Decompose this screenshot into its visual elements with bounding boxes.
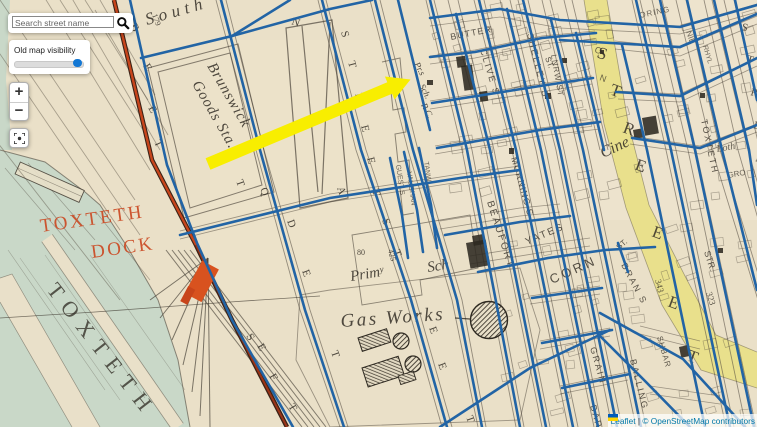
svg-text:80: 80	[357, 248, 365, 257]
